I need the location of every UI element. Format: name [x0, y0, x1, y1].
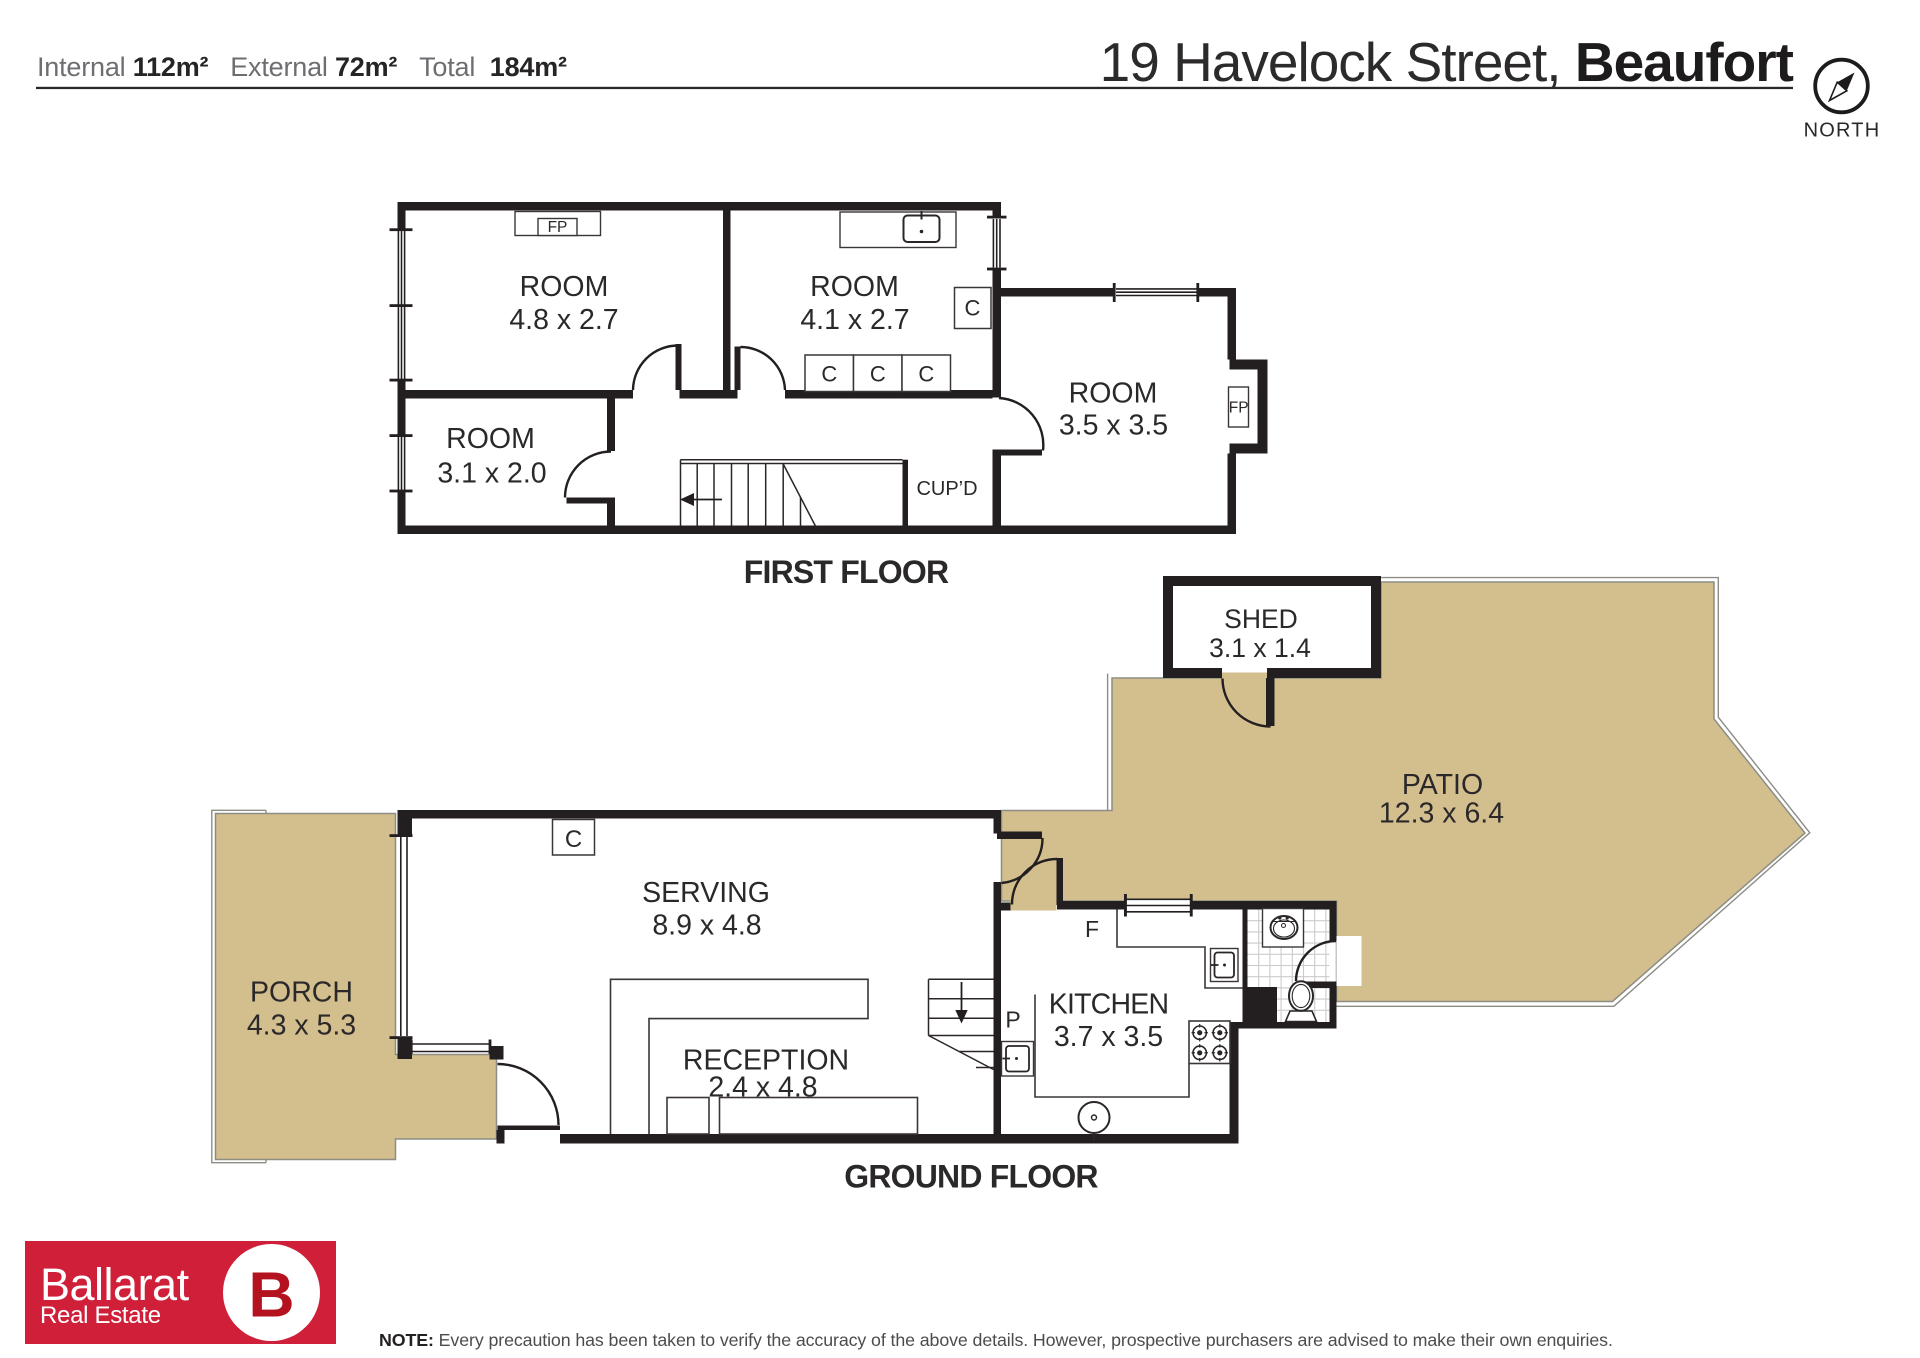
svg-text:ROOM: ROOM	[520, 271, 609, 303]
svg-text:B: B	[248, 1259, 294, 1331]
svg-text:Real Estate: Real Estate	[40, 1302, 161, 1329]
svg-text:FP: FP	[1229, 400, 1249, 417]
svg-text:ROOM: ROOM	[1069, 378, 1158, 410]
svg-text:SERVING: SERVING	[642, 877, 770, 909]
svg-text:FIRST FLOOR: FIRST FLOOR	[744, 554, 949, 590]
svg-text:KITCHEN: KITCHEN	[1049, 989, 1169, 1021]
svg-text:3.7 x 3.5: 3.7 x 3.5	[1054, 1021, 1163, 1053]
svg-text:SHED: SHED	[1224, 604, 1298, 634]
svg-text:4.8 x 2.7: 4.8 x 2.7	[509, 304, 618, 336]
svg-text:2.4 x 4.8: 2.4 x 4.8	[708, 1072, 817, 1104]
svg-text:GROUND FLOOR: GROUND FLOOR	[844, 1159, 1098, 1195]
svg-text:12.3 x 6.4: 12.3 x 6.4	[1379, 798, 1504, 830]
svg-text:C: C	[870, 362, 886, 387]
svg-text:3.1 x 2.0: 3.1 x 2.0	[437, 458, 546, 490]
svg-text:P: P	[1005, 1007, 1020, 1033]
svg-text:3.5 x 3.5: 3.5 x 3.5	[1059, 410, 1168, 442]
svg-text:C: C	[965, 296, 981, 321]
svg-text:ROOM: ROOM	[446, 423, 535, 455]
svg-text:PATIO: PATIO	[1402, 769, 1483, 801]
svg-text:F: F	[1085, 916, 1099, 942]
svg-text:ROOM: ROOM	[810, 271, 899, 303]
svg-text:4.1 x 2.7: 4.1 x 2.7	[800, 304, 909, 336]
svg-text:8.9 x 4.8: 8.9 x 4.8	[652, 910, 761, 942]
svg-text:CUP’D: CUP’D	[916, 478, 977, 500]
svg-text:FP: FP	[548, 219, 568, 236]
svg-text:3.1 x 1.4: 3.1 x 1.4	[1209, 633, 1311, 663]
svg-text:19 Havelock Street, Beaufort: 19 Havelock Street, Beaufort	[1100, 31, 1794, 93]
svg-text:NORTH: NORTH	[1804, 120, 1881, 142]
svg-text:C: C	[565, 826, 582, 853]
svg-text:C: C	[821, 362, 837, 387]
svg-text:C: C	[918, 362, 934, 387]
svg-text:PORCH: PORCH	[250, 977, 353, 1009]
svg-text:Internal 112m² External 72m²: Internal 112m² External 72m² Total 184m²	[37, 52, 567, 82]
svg-text:4.3 x 5.3: 4.3 x 5.3	[247, 1010, 356, 1042]
svg-text:NOTE: Every precaution has bee: NOTE: Every precaution has been taken to…	[379, 1330, 1613, 1350]
